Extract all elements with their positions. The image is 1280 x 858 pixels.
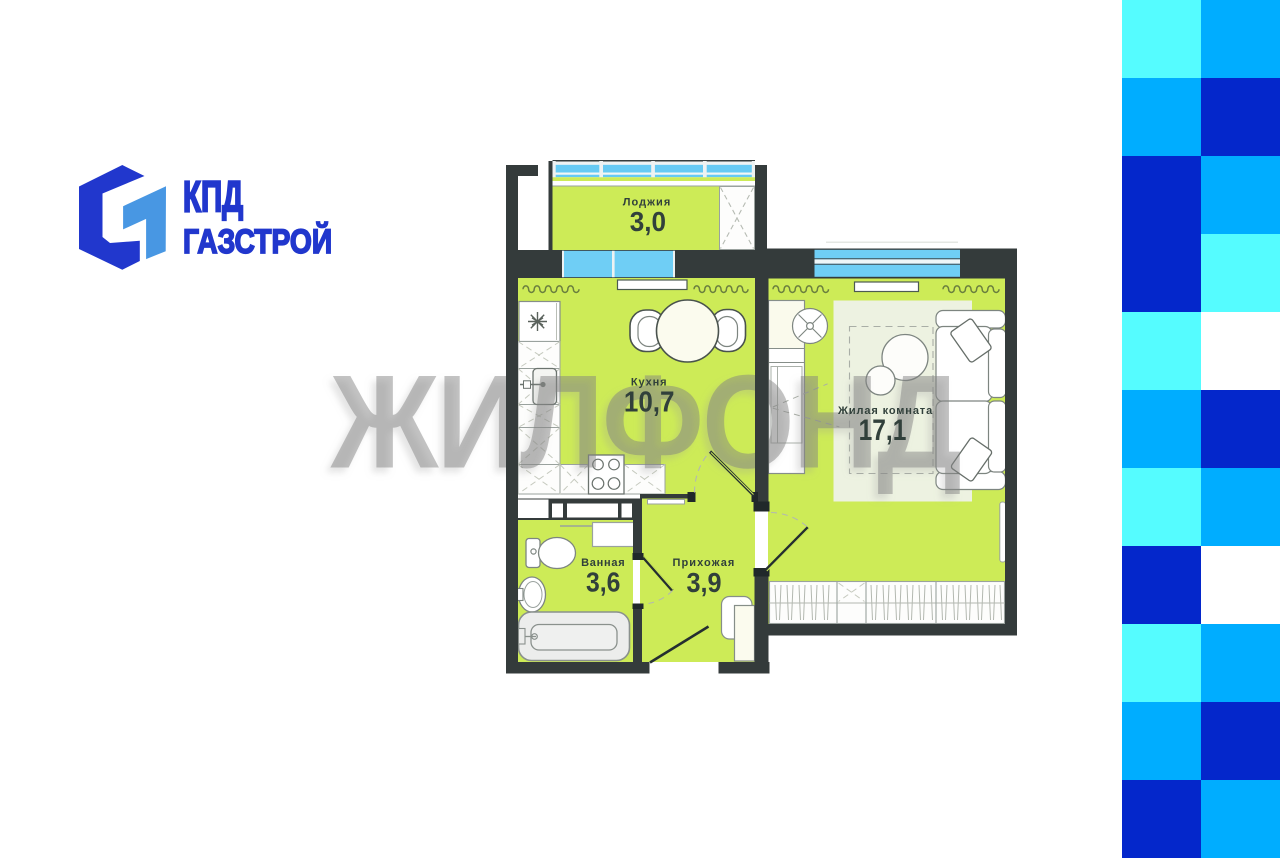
svg-text:3,0: 3,0 bbox=[630, 206, 666, 237]
svg-text:10,7: 10,7 bbox=[624, 387, 675, 419]
svg-text:КПД: КПД bbox=[183, 172, 243, 221]
svg-text:17,1: 17,1 bbox=[859, 414, 907, 447]
svg-text:3,6: 3,6 bbox=[586, 566, 620, 597]
svg-text:ГАЗСТРОЙ: ГАЗСТРОЙ bbox=[183, 221, 332, 260]
svg-text:3,9: 3,9 bbox=[686, 567, 721, 598]
